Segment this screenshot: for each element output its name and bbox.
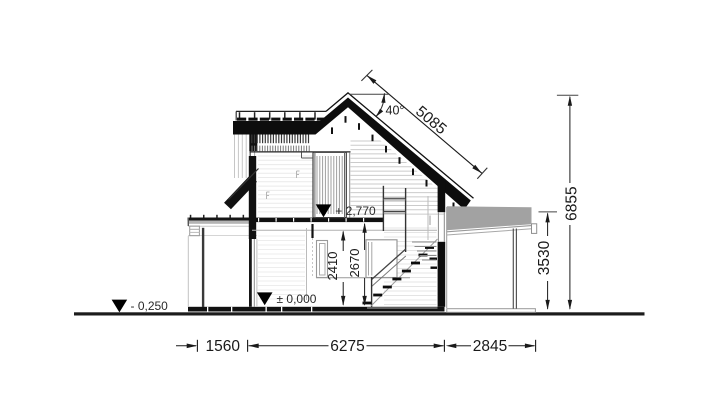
svg-text:40°: 40°	[386, 104, 405, 118]
svg-text:1560: 1560	[206, 338, 241, 355]
svg-text:3530: 3530	[536, 240, 553, 275]
svg-text:6275: 6275	[330, 338, 364, 355]
svg-text:2845: 2845	[473, 338, 507, 355]
svg-text:- 0,250: - 0,250	[131, 299, 169, 313]
svg-text:2410: 2410	[325, 252, 340, 281]
svg-text:6855: 6855	[564, 186, 581, 220]
svg-text:± 0,000: ± 0,000	[277, 292, 317, 306]
svg-text:+ 2,770: + 2,770	[335, 204, 376, 218]
svg-text:2670: 2670	[347, 249, 362, 278]
